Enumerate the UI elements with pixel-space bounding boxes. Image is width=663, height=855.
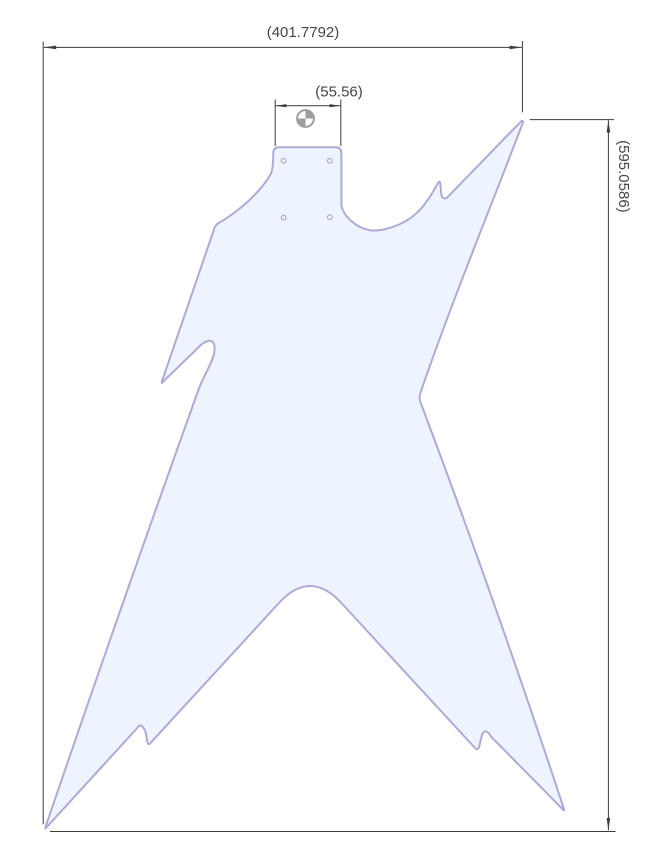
svg-text:(55.56): (55.56)	[315, 84, 363, 101]
svg-text:(401.7792): (401.7792)	[267, 24, 340, 41]
svg-text:(595.0586): (595.0586)	[615, 140, 632, 213]
